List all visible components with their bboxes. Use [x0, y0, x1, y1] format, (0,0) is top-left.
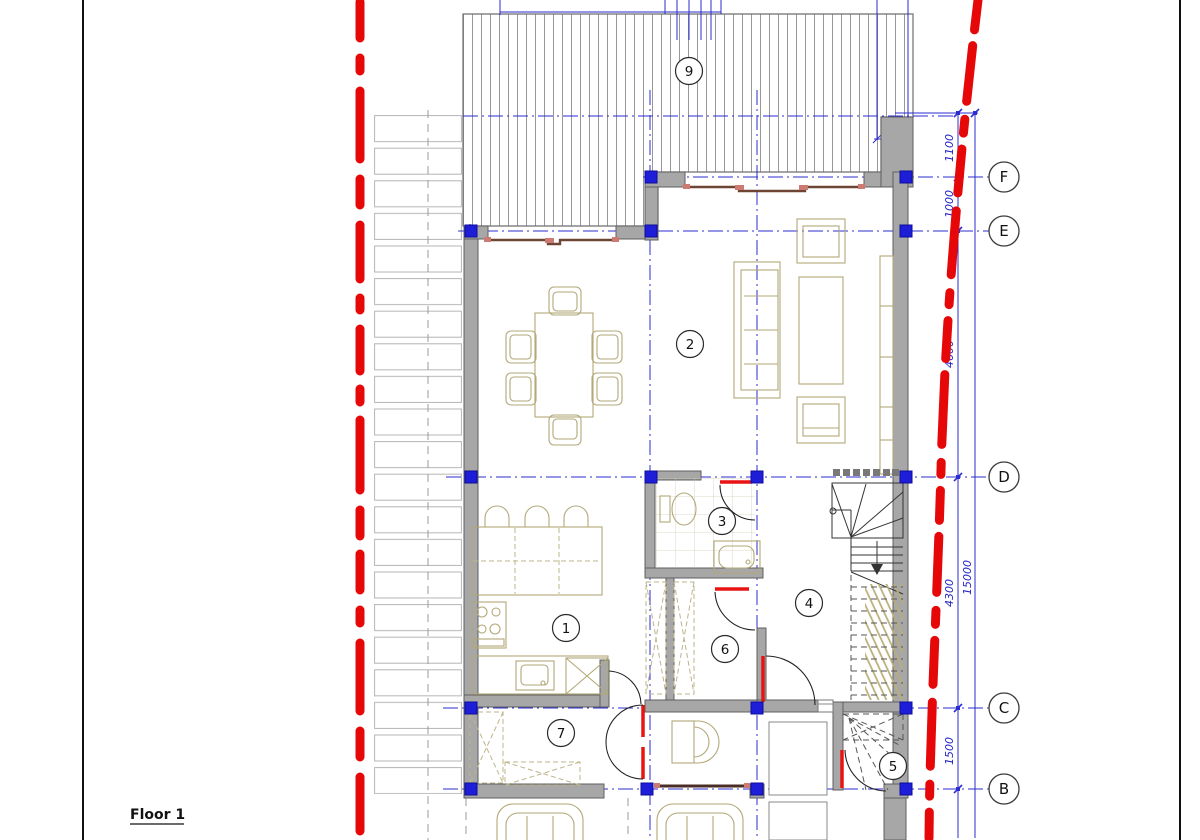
kitchen-counter	[472, 656, 608, 694]
room-label-6: 6	[721, 642, 730, 658]
grid-bubble-E: E	[999, 222, 1008, 240]
grid-bubble-C: C	[999, 699, 1009, 717]
armchair-bottom	[797, 397, 845, 443]
coffee-table	[799, 277, 843, 384]
room-label-9: 9	[685, 64, 694, 80]
armchair-top	[797, 219, 845, 263]
kitchen-island	[472, 527, 602, 595]
room-label-3: 3	[718, 514, 727, 530]
roof-canopy	[463, 14, 913, 226]
room-label-4: 4	[805, 596, 814, 612]
grid-bubble-D: D	[998, 468, 1010, 486]
bathroom-tile-floor	[656, 478, 755, 568]
wall-bath-left	[645, 475, 655, 577]
dining-table	[506, 287, 622, 445]
dim-text-1500: 1500	[943, 737, 956, 765]
wall-kitchen-bottom	[464, 695, 604, 707]
grid-bubbles: F E D C B	[989, 162, 1019, 804]
porch-step-upper	[769, 722, 827, 795]
bar-stools	[485, 506, 588, 527]
grid-bubble-B: B	[999, 780, 1009, 798]
stair-direction-arrow	[871, 564, 883, 575]
room-label-1: 1	[562, 621, 571, 637]
room-label-2: 2	[686, 337, 695, 353]
dim-text-15000: 15000	[961, 560, 974, 595]
window-north	[685, 187, 864, 191]
floor-plan-page: 600 1100 1000 4600 4300 1500 15000	[0, 0, 1200, 840]
dim-text-1100: 1100	[943, 134, 956, 162]
boundary-line-right	[929, 0, 978, 838]
wall-wardrobe-divider	[666, 578, 674, 700]
floor-plan-drawing: 600 1100 1000 4600 4300 1500 15000	[0, 0, 1200, 840]
toilet-2	[672, 721, 719, 763]
entry-threshold	[818, 700, 833, 712]
room-label-5: 5	[889, 759, 898, 775]
car-2	[657, 804, 743, 840]
floor-title: Floor 1	[130, 807, 185, 823]
room-label-7: 7	[557, 726, 566, 742]
railing-posts	[833, 469, 899, 476]
wall-exterior-bottom	[464, 784, 604, 798]
car-1	[497, 804, 583, 840]
staircase-main	[830, 469, 903, 700]
dim-text-4300: 4300	[943, 579, 956, 607]
site-elements	[497, 722, 827, 840]
wardrobes	[470, 582, 694, 785]
porch-step-lower	[769, 802, 827, 840]
grid-bubble-F: F	[1000, 168, 1009, 186]
tv-unit	[880, 256, 893, 474]
